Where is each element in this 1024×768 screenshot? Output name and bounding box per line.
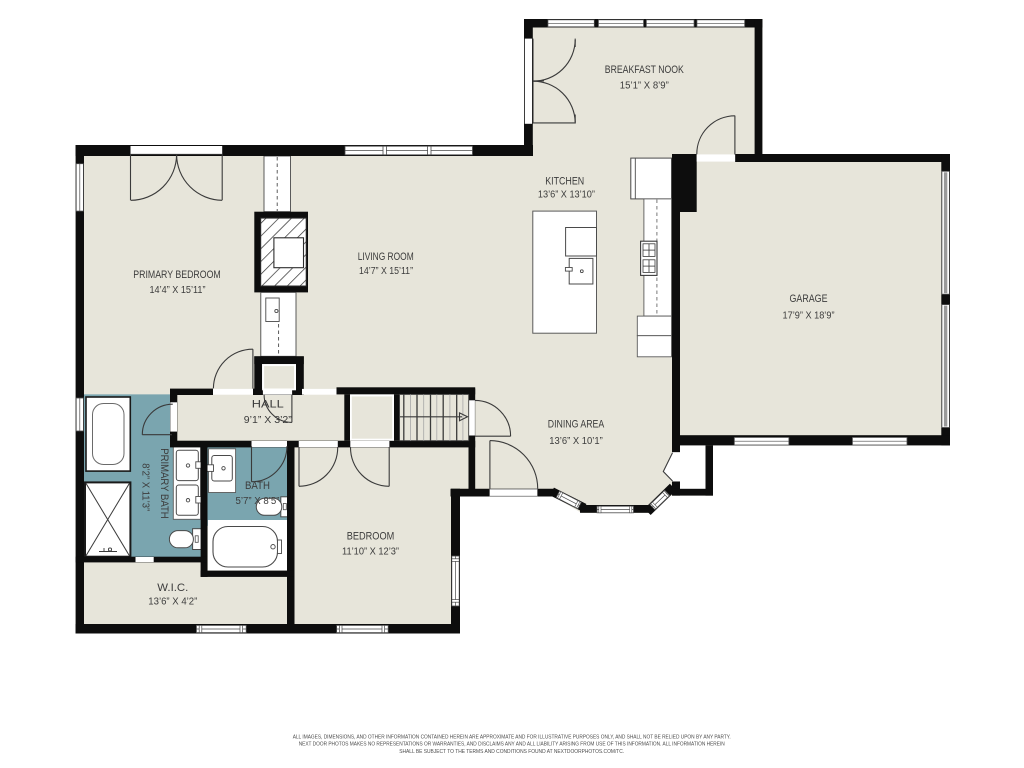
svg-text:GARAGE: GARAGE <box>790 293 828 305</box>
svg-text:13’6” X 4’2”: 13’6” X 4’2” <box>148 597 197 608</box>
svg-text:SHALL BE SUBJECT TO THE TERMS: SHALL BE SUBJECT TO THE TERMS AND CONDIT… <box>399 749 624 755</box>
svg-text:15’1” X 8’9”: 15’1” X 8’9” <box>620 80 669 91</box>
svg-text:HALL: HALL <box>252 399 284 411</box>
svg-text:PRIMARY BEDROOM: PRIMARY BEDROOM <box>133 269 221 281</box>
svg-text:BATH: BATH <box>245 480 270 492</box>
svg-text:11’10” X 12’3”: 11’10” X 12’3” <box>342 547 399 558</box>
svg-text:13’6” X 10’1”: 13’6” X 10’1” <box>549 436 603 447</box>
svg-text:8’2” X 11’3”: 8’2” X 11’3” <box>139 463 150 511</box>
svg-text:LIVING ROOM: LIVING ROOM <box>358 251 414 263</box>
svg-text:KITCHEN: KITCHEN <box>545 176 584 188</box>
svg-text:14’7” X 15’11”: 14’7” X 15’11” <box>359 266 413 277</box>
svg-text:BEDROOM: BEDROOM <box>347 531 395 543</box>
svg-text:DINING AREA: DINING AREA <box>548 419 605 431</box>
svg-text:ALL IMAGES, DIMENSIONS, AND OT: ALL IMAGES, DIMENSIONS, AND OTHER INFORM… <box>293 734 731 740</box>
svg-text:14’4” X 15’11”: 14’4” X 15’11” <box>150 285 206 296</box>
svg-text:13’6” X 13’10”: 13’6” X 13’10” <box>538 189 595 200</box>
svg-text:W.I.C.: W.I.C. <box>157 582 188 594</box>
svg-text:BREAKFAST NOOK: BREAKFAST NOOK <box>605 64 685 76</box>
svg-text:17’9” X 18’9”: 17’9” X 18’9” <box>783 310 835 321</box>
svg-text:PRIMARY BATH: PRIMARY BATH <box>158 448 170 519</box>
svg-text:9’1” X 3’2”: 9’1” X 3’2” <box>244 415 292 426</box>
svg-text:5’7” X 8’5”: 5’7” X 8’5” <box>236 496 280 507</box>
svg-text:NEXT DOOR PHOTOS MAKES NO REPR: NEXT DOOR PHOTOS MAKES NO REPRESENTATION… <box>299 742 725 748</box>
